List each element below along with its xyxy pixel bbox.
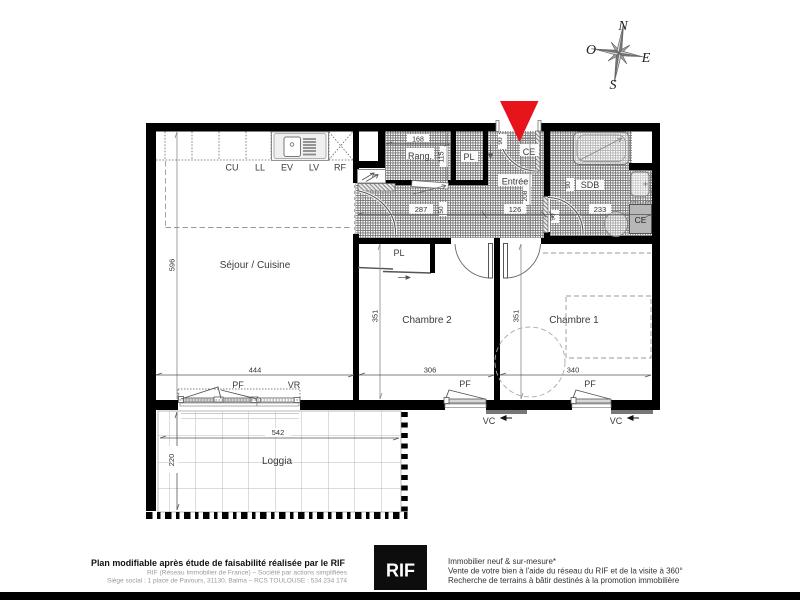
svg-text:N: N — [617, 19, 628, 34]
svg-text:208: 208 — [522, 190, 529, 201]
svg-text:S: S — [610, 78, 617, 93]
svg-text:50: 50 — [438, 206, 445, 214]
svg-text:RIF (Réseau Immobilier de Fran: RIF (Réseau Immobilier de France) – Soci… — [147, 570, 348, 577]
svg-text:168: 168 — [412, 137, 424, 144]
svg-text:Immobilier neuf & sur-mesure*: Immobilier neuf & sur-mesure* — [448, 557, 556, 566]
svg-text:90: 90 — [497, 137, 504, 145]
svg-text:Siège social : 1 place de Pavo: Siège social : 1 place de Pavours, 31130… — [107, 578, 347, 585]
svg-text:CU: CU — [226, 163, 239, 173]
svg-text:E: E — [641, 51, 651, 66]
svg-text:287: 287 — [415, 205, 428, 214]
svg-text:LV: LV — [309, 163, 319, 173]
svg-text:Séjour / Cuisine: Séjour / Cuisine — [220, 260, 291, 271]
svg-text:90: 90 — [550, 213, 557, 221]
svg-text:351: 351 — [371, 310, 380, 323]
svg-text:PF: PF — [459, 379, 471, 389]
svg-text:Entrée: Entrée — [502, 177, 529, 187]
svg-text:444: 444 — [249, 366, 262, 375]
svg-text:Loggia: Loggia — [262, 456, 292, 467]
svg-text:CE: CE — [523, 147, 536, 157]
svg-text:542: 542 — [272, 428, 285, 437]
svg-text:PF: PF — [232, 380, 244, 390]
svg-text:PL: PL — [463, 152, 474, 162]
svg-text:115: 115 — [439, 151, 446, 162]
svg-text:340: 340 — [567, 366, 580, 375]
svg-text:RF: RF — [334, 163, 346, 173]
svg-text:CE: CE — [635, 215, 647, 225]
svg-text:126: 126 — [509, 205, 522, 214]
svg-text:VC: VC — [483, 416, 496, 426]
svg-text:EV: EV — [281, 163, 293, 173]
svg-text:SDB: SDB — [581, 180, 600, 190]
svg-text:PL: PL — [393, 248, 404, 258]
svg-text:Chambre 2: Chambre 2 — [402, 315, 452, 326]
svg-text:Recherche de terrains à bâtir: Recherche de terrains à bâtir destinés à… — [448, 576, 680, 585]
svg-text:RIF: RIF — [386, 561, 415, 581]
svg-text:O: O — [586, 43, 596, 58]
svg-text:LL: LL — [255, 163, 265, 173]
svg-text:596: 596 — [168, 259, 177, 272]
svg-text:VC: VC — [610, 416, 623, 426]
svg-text:Plan modifiable après étude de: Plan modifiable après étude de faisabili… — [91, 558, 345, 569]
svg-text:233: 233 — [594, 205, 607, 214]
svg-text:220: 220 — [167, 454, 176, 467]
svg-text:VR: VR — [288, 380, 301, 390]
svg-text:PF: PF — [584, 379, 596, 389]
svg-text:306: 306 — [424, 366, 437, 375]
svg-text:Rang.: Rang. — [408, 151, 432, 161]
svg-text:351: 351 — [512, 310, 521, 323]
svg-text:Chambre 1: Chambre 1 — [549, 315, 599, 326]
svg-text:Vente de votre bien à l'aide d: Vente de votre bien à l'aide du réseau d… — [448, 567, 683, 576]
svg-text:90: 90 — [565, 181, 572, 189]
